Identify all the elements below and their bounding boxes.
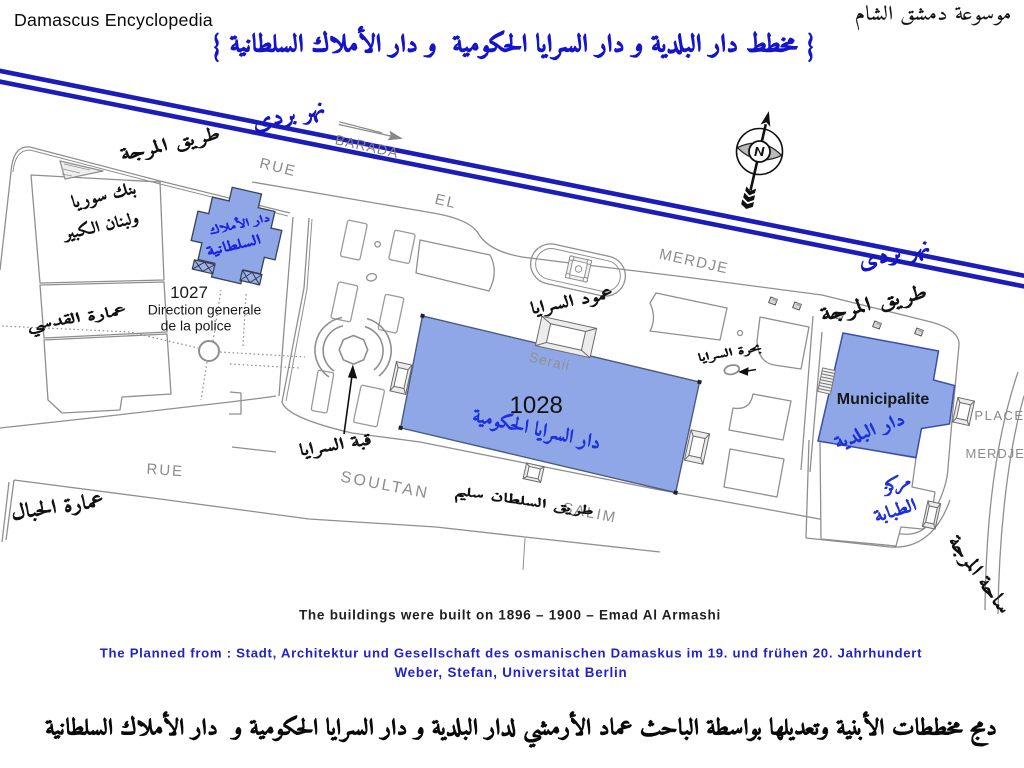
svg-text:de la police: de la police <box>161 318 232 334</box>
svg-text:The buildings were built on 18: The buildings were built on 1896 – 1900 … <box>299 608 721 623</box>
svg-text:RUE: RUE <box>146 461 185 481</box>
svg-text:The Planned from : Stadt, Arch: The Planned from : Stadt, Architektur un… <box>100 646 922 661</box>
svg-text:Direction generale: Direction generale <box>148 302 262 318</box>
svg-text:1028: 1028 <box>510 392 563 419</box>
svg-text:1027: 1027 <box>170 283 208 302</box>
svg-text:PLACE: PLACE <box>974 408 1024 423</box>
svg-text:Weber, Stefan, Universitat Ber: Weber, Stefan, Universitat Berlin <box>394 665 627 680</box>
svg-text:MERDJE': MERDJE' <box>966 446 1024 461</box>
svg-text:Damascus Encyclopedia: Damascus Encyclopedia <box>14 10 213 30</box>
svg-text:Municipalite: Municipalite <box>837 391 930 408</box>
